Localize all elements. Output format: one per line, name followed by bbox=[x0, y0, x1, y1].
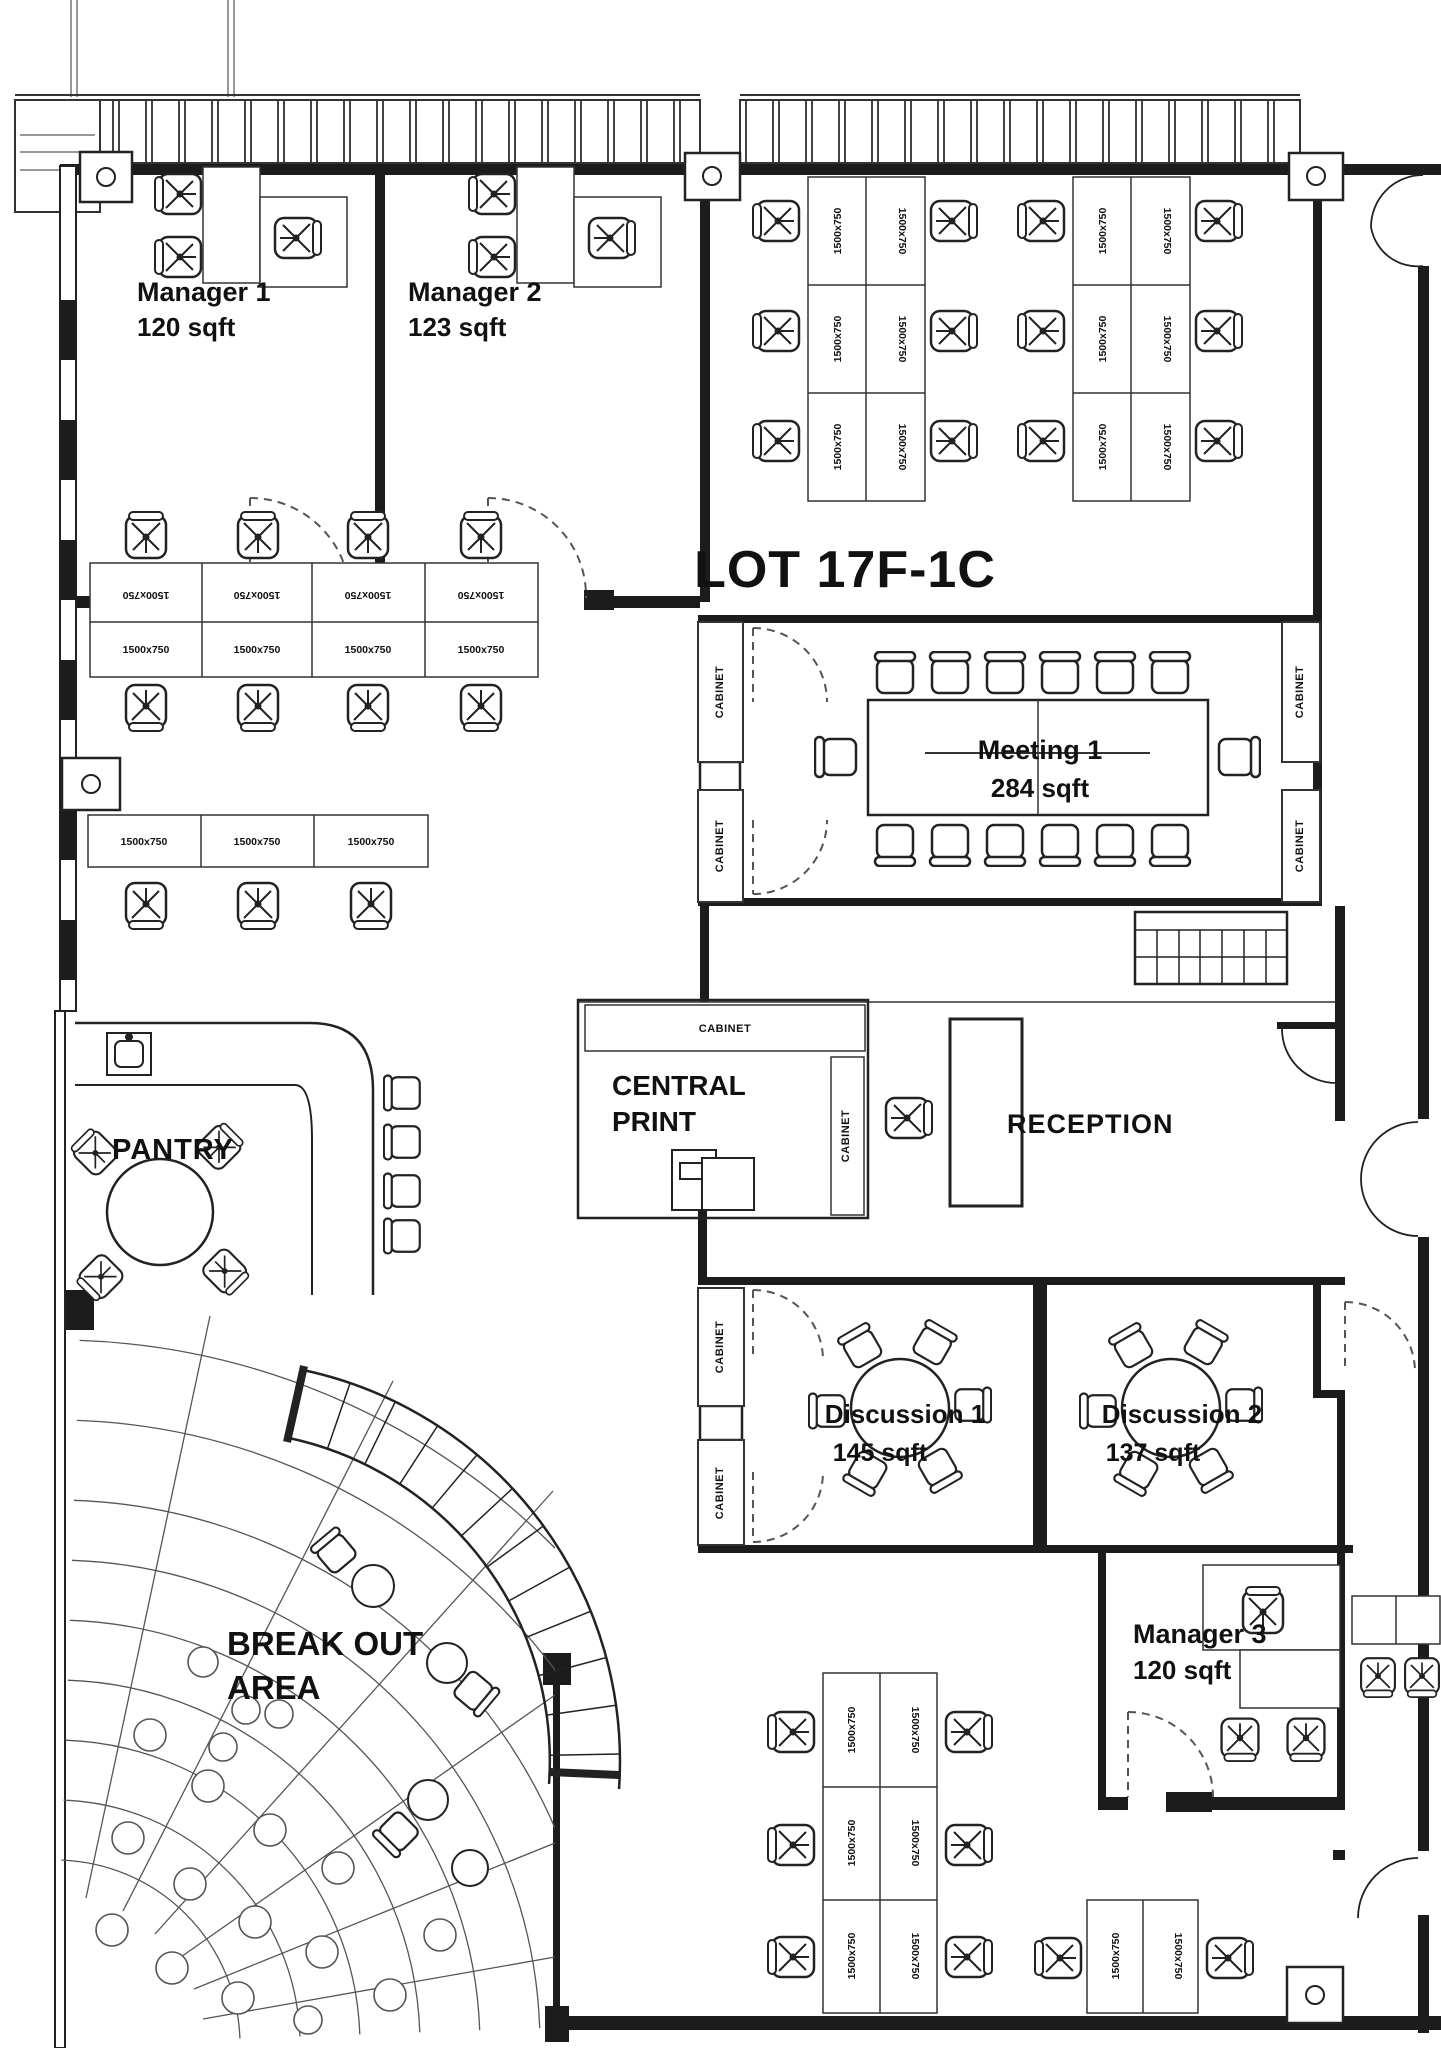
side-chair-icon bbox=[1095, 652, 1135, 693]
office-chair-icon bbox=[126, 512, 166, 558]
meeting1-area: 284 sqft bbox=[925, 772, 1155, 805]
desk-size-label: 1500x750 bbox=[344, 589, 391, 601]
discussion2-name: Discussion 2 bbox=[1072, 1398, 1292, 1431]
side-chair-icon bbox=[384, 1125, 420, 1160]
cabinet-label: CABINET bbox=[699, 1023, 751, 1035]
pantry-table bbox=[107, 1159, 213, 1265]
office-chair-icon bbox=[1288, 1719, 1325, 1761]
desk-size-label: 1500x750 bbox=[345, 644, 392, 656]
side-chair-icon bbox=[985, 652, 1025, 693]
desk-size-label: 1500x750 bbox=[896, 208, 908, 255]
desk-size-label: 1500x750 bbox=[1172, 1933, 1184, 1980]
curved-bench bbox=[287, 1366, 620, 1789]
office-chair-icon bbox=[1222, 1719, 1259, 1761]
office-chair-icon bbox=[768, 1712, 814, 1752]
office-chair-icon bbox=[1018, 311, 1064, 351]
manager2-area: 123 sqft bbox=[408, 311, 506, 344]
cabinet-label: CABINET bbox=[1294, 820, 1306, 872]
side-chair-icon bbox=[1150, 652, 1190, 693]
central-print-name: CENTRAL PRINT bbox=[612, 1068, 746, 1141]
office-chair-icon bbox=[753, 201, 799, 241]
manager3-name: Manager 3 bbox=[1133, 1618, 1267, 1652]
office-chair-icon bbox=[200, 1246, 251, 1297]
workstations-bottom: 1500x750 1500x750 1500x750 1500x750 1500… bbox=[768, 1673, 1253, 2013]
office-chair-icon bbox=[753, 311, 799, 351]
cabinet-label: CABINET bbox=[714, 820, 726, 872]
desk-size-label: 1500x750 bbox=[1097, 207, 1109, 254]
office-chair-icon bbox=[1196, 311, 1242, 351]
desk-size-label: 1500x750 bbox=[832, 315, 844, 362]
office-chair-icon bbox=[1207, 1938, 1253, 1978]
plan-title: LOT 17F-1C bbox=[650, 538, 1040, 603]
office-chair-icon bbox=[589, 218, 635, 258]
desk-size-label: 1500x750 bbox=[122, 589, 169, 601]
desk-size-label: 1500x750 bbox=[233, 589, 280, 601]
desk-size-label: 1500x750 bbox=[846, 1706, 858, 1753]
office-chair-icon bbox=[238, 883, 278, 929]
lockers bbox=[1135, 912, 1287, 984]
side-chair-icon bbox=[1040, 652, 1080, 693]
side-chair-icon bbox=[1095, 825, 1135, 866]
desk-size-label: 1500x750 bbox=[896, 316, 908, 363]
office-chair-icon bbox=[1405, 1658, 1439, 1697]
office-chair-icon bbox=[1196, 201, 1242, 241]
office-chair-icon bbox=[126, 883, 166, 929]
desk-size-label: 1500x750 bbox=[1097, 423, 1109, 470]
side-chair-icon bbox=[875, 825, 915, 866]
desk-size-label: 1500x750 bbox=[121, 836, 168, 848]
side-chair-icon bbox=[384, 1219, 420, 1254]
office-chair-icon bbox=[753, 421, 799, 461]
meeting1-name: Meeting 1 bbox=[925, 734, 1155, 768]
office-chair-icon bbox=[348, 685, 388, 731]
office-chair-icon bbox=[1018, 201, 1064, 241]
sink-icon bbox=[107, 1033, 151, 1075]
office-chair-icon bbox=[238, 512, 278, 558]
desk-size-label: 1500x750 bbox=[234, 644, 281, 656]
office-chair-icon bbox=[931, 311, 977, 351]
desk-size-label: 1500x750 bbox=[458, 644, 505, 656]
office-chair-icon bbox=[1361, 1658, 1395, 1697]
desk-size-label: 1500x750 bbox=[1110, 1932, 1122, 1979]
desk-size-label: 1500x750 bbox=[846, 1932, 858, 1979]
office-chair-icon bbox=[946, 1825, 992, 1865]
office-chair-icon bbox=[946, 1937, 992, 1977]
office-chair-icon bbox=[469, 237, 515, 277]
office-chair-icon bbox=[931, 201, 977, 241]
desk-size-label: 1500x750 bbox=[1097, 315, 1109, 362]
side-chair-icon bbox=[384, 1174, 420, 1209]
desk-size-label: 1500x750 bbox=[234, 836, 281, 848]
side-chair-icon bbox=[985, 825, 1025, 866]
cabinet-label: CABINET bbox=[840, 1110, 852, 1162]
manager1-name: Manager 1 bbox=[137, 276, 271, 310]
workstations-top-right: 1500x750 1500x750 1500x750 1500x750 1500… bbox=[753, 177, 1242, 501]
office-chair-icon bbox=[461, 512, 501, 558]
manager3-area: 120 sqft bbox=[1133, 1654, 1231, 1687]
desk-size-label: 1500x750 bbox=[1161, 208, 1173, 255]
desk-size-label: 1500x750 bbox=[832, 207, 844, 254]
pantry-name: PANTRY bbox=[112, 1132, 234, 1168]
desk-size-label: 1500x750 bbox=[896, 424, 908, 471]
desk-size-label: 1500x750 bbox=[457, 589, 504, 601]
office-chair-icon bbox=[155, 174, 201, 214]
desk-size-label: 1500x750 bbox=[909, 1820, 921, 1867]
office-chair-icon bbox=[348, 512, 388, 558]
reception-name: RECEPTION bbox=[1007, 1108, 1174, 1142]
side-chair-icon bbox=[930, 825, 970, 866]
discussion2-area: 137 sqft bbox=[1073, 1438, 1233, 1469]
office-chair-icon bbox=[1035, 1938, 1081, 1978]
cabinet-label: CABINET bbox=[714, 1321, 726, 1373]
side-chair-icon bbox=[371, 1809, 421, 1859]
printer-icon bbox=[672, 1150, 754, 1210]
office-chair-icon bbox=[126, 685, 166, 731]
side-chair-icon bbox=[1181, 1319, 1229, 1368]
floor-plan: 1500x750 1500x750 1500x750 1500x750 1500… bbox=[0, 0, 1441, 2048]
left-wall bbox=[55, 166, 76, 2048]
office-chair-icon bbox=[768, 1825, 814, 1865]
office-chair-icon bbox=[931, 421, 977, 461]
side-chair-icon bbox=[930, 652, 970, 693]
breakout-name: BREAK OUT AREA bbox=[227, 1622, 423, 1709]
desk-size-label: 1500x750 bbox=[123, 644, 170, 656]
side-chair-icon bbox=[1219, 737, 1260, 777]
manager1-area: 120 sqft bbox=[137, 311, 235, 344]
side-chair-icon bbox=[309, 1526, 359, 1576]
cabinet-label: CABINET bbox=[1294, 666, 1306, 718]
desk-size-label: 1500x750 bbox=[909, 1933, 921, 1980]
desk-size-label: 1500x750 bbox=[909, 1707, 921, 1754]
desk-size-label: 1500x750 bbox=[1161, 424, 1173, 471]
office-chair-icon bbox=[155, 237, 201, 277]
side-chair-icon bbox=[815, 737, 856, 777]
cabinet-label: CABINET bbox=[714, 1467, 726, 1519]
cabinet-label: CABINET bbox=[714, 666, 726, 718]
office-chair-icon bbox=[238, 685, 278, 731]
desk-size-label: 1500x750 bbox=[1161, 316, 1173, 363]
side-chair-icon bbox=[384, 1076, 420, 1111]
office-chair-icon bbox=[1196, 421, 1242, 461]
desk-size-label: 1500x750 bbox=[846, 1819, 858, 1866]
desk-size-label: 1500x750 bbox=[832, 423, 844, 470]
manager2-name: Manager 2 bbox=[408, 276, 542, 310]
side-chair-icon bbox=[910, 1319, 958, 1368]
side-chair-icon bbox=[1040, 825, 1080, 866]
discussion1-name: Discussion 1 bbox=[795, 1398, 1015, 1431]
office-chair-icon bbox=[946, 1712, 992, 1752]
office-chair-icon bbox=[275, 218, 321, 258]
office-chair-icon bbox=[469, 174, 515, 214]
desk-size-label: 1500x750 bbox=[348, 836, 395, 848]
side-chair-icon bbox=[1150, 825, 1190, 866]
office-chair-icon bbox=[461, 685, 501, 731]
office-chair-icon bbox=[886, 1098, 932, 1138]
office-chair-icon bbox=[351, 883, 391, 929]
side-chair-icon bbox=[875, 652, 915, 693]
office-chair-icon bbox=[768, 1937, 814, 1977]
workstations-left: 1500x750 1500x750 1500x750 1500x750 1500… bbox=[88, 512, 538, 929]
office-chair-icon bbox=[1018, 421, 1064, 461]
discussion1-area: 145 sqft bbox=[800, 1438, 960, 1469]
